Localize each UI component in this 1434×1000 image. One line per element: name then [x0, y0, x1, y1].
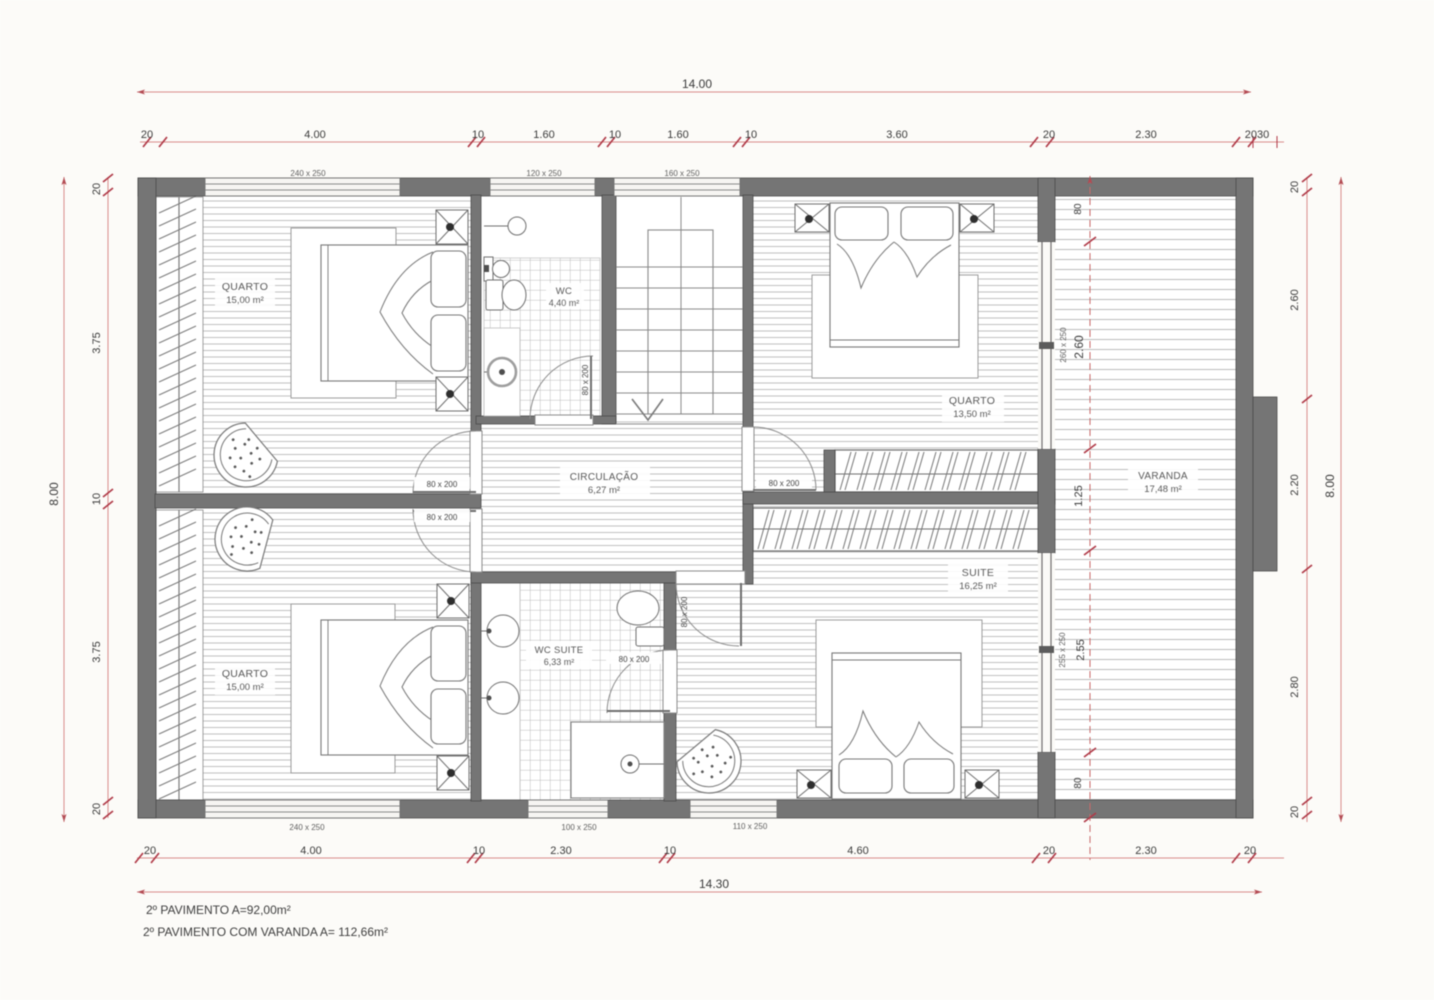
svg-text:80: 80: [1073, 777, 1084, 789]
svg-text:255 x 250: 255 x 250: [1058, 632, 1067, 668]
svg-text:10: 10: [664, 845, 676, 857]
svg-text:80 x 200: 80 x 200: [769, 479, 800, 488]
svg-text:20: 20: [141, 129, 153, 141]
svg-text:2.30: 2.30: [1135, 845, 1156, 857]
svg-text:2.80: 2.80: [1289, 676, 1301, 697]
svg-text:4.00: 4.00: [304, 129, 325, 141]
svg-text:2º PAVIMENTO COM VARANDA A= 11: 2º PAVIMENTO COM VARANDA A= 112,66m²: [143, 925, 388, 939]
svg-text:VARANDA: VARANDA: [1138, 471, 1188, 482]
svg-text:4,40 m²: 4,40 m²: [549, 298, 580, 308]
svg-text:14.00: 14.00: [682, 77, 712, 91]
svg-text:20: 20: [91, 803, 103, 815]
svg-text:3.60: 3.60: [886, 129, 907, 141]
svg-text:10: 10: [91, 493, 103, 505]
svg-text:3.75: 3.75: [91, 332, 103, 353]
svg-text:20: 20: [144, 845, 156, 857]
svg-text:15,00 m²: 15,00 m²: [226, 682, 264, 693]
svg-text:1.60: 1.60: [667, 129, 688, 141]
svg-text:80 x 200: 80 x 200: [581, 364, 590, 395]
svg-text:8.00: 8.00: [1323, 474, 1337, 498]
svg-text:20: 20: [1043, 845, 1055, 857]
svg-text:WC SUITE: WC SUITE: [535, 645, 584, 656]
svg-text:2.30: 2.30: [1135, 129, 1156, 141]
svg-text:2.55: 2.55: [1075, 639, 1087, 660]
svg-text:SUITE: SUITE: [962, 567, 994, 579]
svg-text:17,48 m²: 17,48 m²: [1144, 484, 1182, 495]
svg-text:240 x 250: 240 x 250: [289, 823, 325, 832]
svg-text:10: 10: [473, 845, 485, 857]
svg-text:3.75: 3.75: [91, 641, 103, 662]
svg-text:80 x 200: 80 x 200: [427, 513, 458, 522]
svg-text:80 x 200: 80 x 200: [680, 596, 689, 627]
svg-text:4.60: 4.60: [847, 845, 868, 857]
svg-text:QUARTO: QUARTO: [949, 395, 995, 407]
svg-text:10: 10: [472, 129, 484, 141]
svg-text:6,27 m²: 6,27 m²: [588, 485, 620, 496]
svg-text:2.20: 2.20: [1289, 474, 1301, 495]
svg-text:2.30: 2.30: [550, 845, 571, 857]
svg-text:20: 20: [1244, 845, 1256, 857]
svg-text:80 x 200: 80 x 200: [619, 655, 650, 664]
svg-text:80: 80: [1073, 203, 1084, 215]
svg-text:160 x 250: 160 x 250: [664, 169, 700, 178]
svg-text:16,25 m²: 16,25 m²: [959, 581, 997, 592]
svg-text:20: 20: [91, 183, 103, 195]
svg-text:CIRCULAÇÃO: CIRCULAÇÃO: [570, 470, 639, 483]
svg-text:13,50 m²: 13,50 m²: [953, 409, 991, 420]
svg-text:2º PAVIMENTO A=92,00m²: 2º PAVIMENTO A=92,00m²: [146, 903, 291, 917]
svg-text:4.00: 4.00: [300, 845, 321, 857]
svg-text:15,00 m²: 15,00 m²: [226, 295, 264, 306]
svg-text:6,33 m²: 6,33 m²: [544, 657, 575, 667]
svg-text:260 x 250: 260 x 250: [1059, 327, 1068, 363]
svg-text:100 x 250: 100 x 250: [561, 823, 597, 832]
svg-text:14.30: 14.30: [699, 877, 729, 891]
svg-text:1.60: 1.60: [533, 129, 554, 141]
svg-text:10: 10: [609, 129, 621, 141]
svg-text:80 x 200: 80 x 200: [427, 480, 458, 489]
svg-text:WC: WC: [556, 286, 572, 297]
svg-text:120 x 250: 120 x 250: [526, 169, 562, 178]
svg-text:1.25: 1.25: [1073, 485, 1085, 506]
svg-text:240 x 250: 240 x 250: [290, 169, 326, 178]
svg-text:10: 10: [745, 129, 757, 141]
svg-text:2030: 2030: [1245, 129, 1269, 141]
svg-text:20: 20: [1043, 129, 1055, 141]
svg-text:8.00: 8.00: [47, 482, 61, 506]
svg-text:2.60: 2.60: [1289, 289, 1301, 310]
svg-text:20: 20: [1289, 806, 1301, 818]
svg-text:QUARTO: QUARTO: [222, 668, 268, 680]
svg-text:20: 20: [1289, 181, 1301, 193]
svg-text:110 x 250: 110 x 250: [733, 822, 768, 831]
svg-text:2.60: 2.60: [1072, 335, 1086, 359]
svg-text:QUARTO: QUARTO: [222, 281, 268, 293]
